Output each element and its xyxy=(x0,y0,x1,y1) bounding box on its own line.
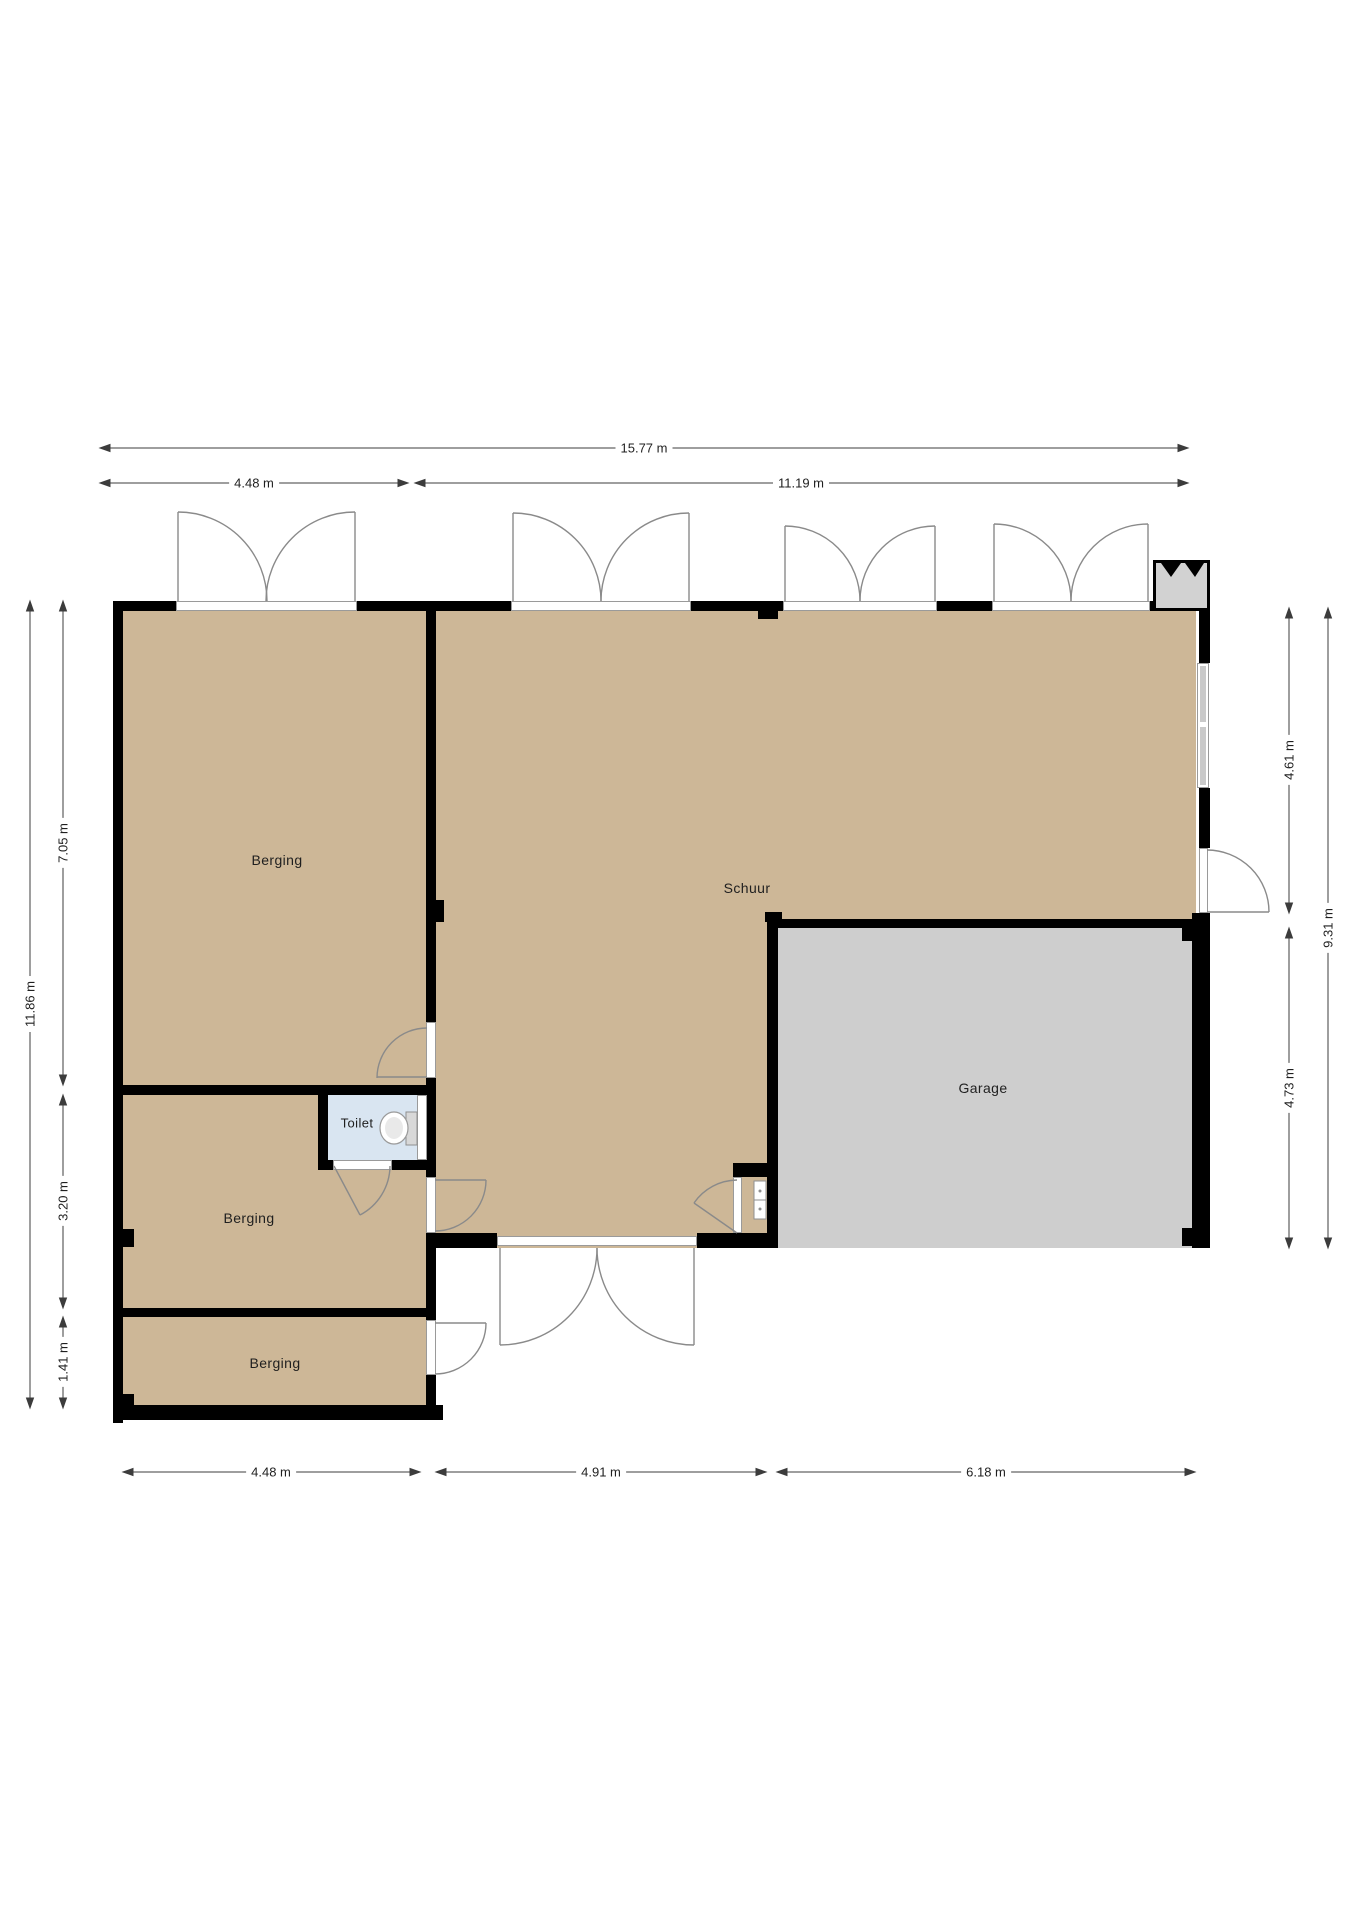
door-arc xyxy=(601,513,689,601)
room-label-berging-2: Berging xyxy=(223,1210,274,1226)
door-leaf xyxy=(334,1166,360,1215)
room-label-berging-1: Berging xyxy=(251,852,302,868)
door-swings xyxy=(178,512,1269,1374)
dim-label-bottom-right: 6.18 m xyxy=(961,1465,1011,1480)
door-arc xyxy=(435,1323,486,1374)
door-arc xyxy=(266,512,355,601)
room-label-toilet: Toilet xyxy=(341,1116,374,1131)
floor-plan-canvas: Berging Schuur Toilet Berging Berging Ga… xyxy=(0,0,1358,1920)
boiler-fixture-icon xyxy=(754,1181,766,1219)
dim-label-left-lower: 1.41 m xyxy=(56,1337,71,1387)
door-arc xyxy=(994,524,1071,601)
room-label-garage: Garage xyxy=(958,1080,1007,1096)
dim-label-total-height: 11.86 m xyxy=(23,976,38,1032)
room-label-berging-3: Berging xyxy=(249,1355,300,1371)
corner-vent-hatches xyxy=(1161,563,1204,577)
dimension-lines xyxy=(27,445,1332,1476)
door-arc xyxy=(435,1180,486,1231)
dim-label-top-right: 11.19 m xyxy=(773,476,829,491)
dim-label-right-total: 9.31 m xyxy=(1321,903,1336,953)
door-arc xyxy=(694,1180,737,1203)
dim-label-left-upper: 7.05 m xyxy=(56,818,71,868)
door-leaf xyxy=(694,1203,737,1233)
dim-label-top-left: 4.48 m xyxy=(229,476,279,491)
room-label-schuur: Schuur xyxy=(724,880,771,896)
dim-label-right-lower: 4.73 m xyxy=(1282,1063,1297,1113)
dim-label-bottom-middle: 4.91 m xyxy=(576,1465,626,1480)
dim-label-left-middle: 3.20 m xyxy=(56,1176,71,1226)
door-arc xyxy=(785,526,860,601)
door-arc xyxy=(377,1028,427,1078)
dim-label-bottom-left: 4.48 m xyxy=(246,1465,296,1480)
toilet-fixture-icon xyxy=(380,1112,417,1145)
door-arc xyxy=(597,1248,694,1345)
door-arc xyxy=(1207,850,1269,912)
door-arc xyxy=(860,526,935,601)
door-arc xyxy=(1071,524,1148,601)
plan-linework xyxy=(0,0,1358,1920)
door-arc xyxy=(513,513,601,601)
door-arc xyxy=(178,512,267,601)
door-arc xyxy=(360,1166,390,1215)
door-arc xyxy=(500,1248,597,1345)
dim-label-total-width: 15.77 m xyxy=(616,441,673,456)
dim-label-right-upper: 4.61 m xyxy=(1282,735,1297,785)
